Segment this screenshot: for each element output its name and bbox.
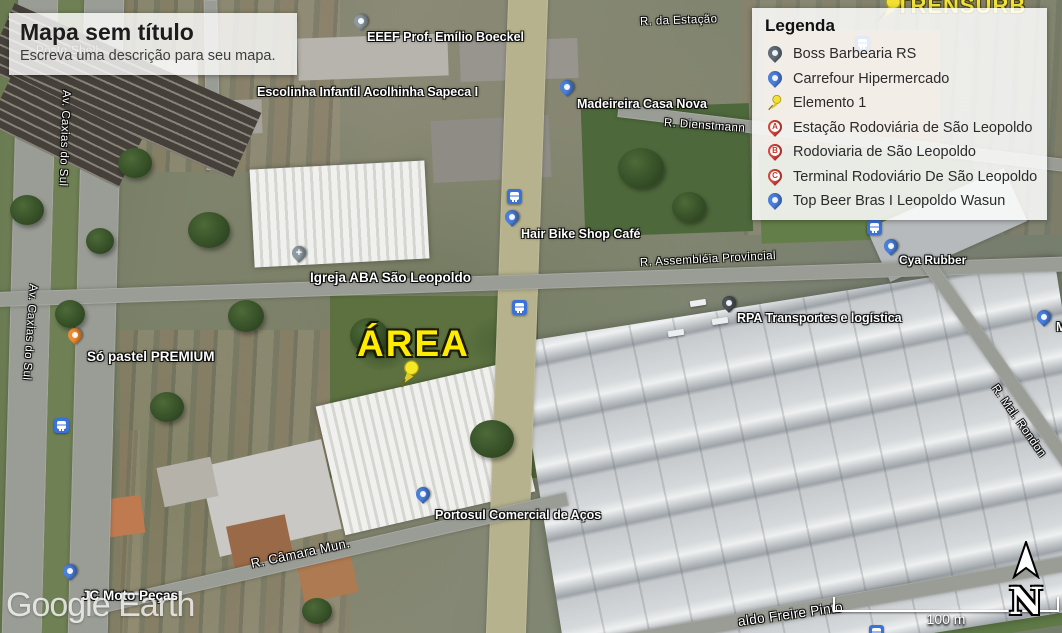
google-earth-watermark: Google Earth bbox=[6, 586, 194, 625]
red-pin-a-icon: A bbox=[765, 117, 785, 137]
legend-item[interactable]: Top Beer Bras I Leopoldo Wasun bbox=[752, 189, 1047, 214]
legend-item[interactable]: C Terminal Rodoviário De São Leopoldo bbox=[752, 165, 1047, 190]
tree bbox=[672, 192, 706, 222]
blue-pin-icon bbox=[765, 68, 785, 88]
legend-item-label: Rodoviaria de São Leopoldo bbox=[793, 144, 976, 160]
poi-label-eeef: EEEF Prof. Emílio Boeckel bbox=[367, 30, 524, 44]
tree bbox=[10, 195, 44, 225]
poi-label-so-pastel: Só pastel PREMIUM bbox=[87, 349, 215, 364]
area-label: ÁREA bbox=[357, 323, 470, 365]
legend-item-label: Estação Rodoviária de São Leopoldo bbox=[793, 120, 1032, 136]
tree bbox=[188, 212, 230, 248]
poi-label-escolinha: Escolinha Infantil Acolhinha Sapeca I bbox=[257, 85, 478, 99]
legend-panel: Legenda Boss Barbearia RS Carrefour Hipe… bbox=[752, 8, 1047, 220]
map-title-panel: Mapa sem título Escreva uma descrição pa… bbox=[9, 13, 297, 75]
legend-title: Legenda bbox=[765, 16, 1047, 36]
poi-label-madeireira: Madeireira Casa Nova bbox=[577, 97, 707, 111]
poi-label-igreja: Igreja ABA São Leopoldo bbox=[310, 270, 471, 285]
poi-label-cya-rubber: Cya Rubber bbox=[899, 253, 966, 267]
tree bbox=[150, 392, 184, 422]
gray-pin-icon bbox=[765, 43, 785, 63]
north-arrow-icon bbox=[1008, 541, 1044, 579]
tree bbox=[618, 148, 664, 188]
north-letter: N bbox=[1008, 584, 1044, 618]
yellow-pushpin-icon bbox=[766, 94, 784, 112]
legend-item[interactable]: A Estação Rodoviária de São Leopoldo bbox=[752, 116, 1047, 141]
bus-stop-icon[interactable] bbox=[507, 189, 522, 204]
north-compass[interactable]: N bbox=[1008, 541, 1044, 618]
tree bbox=[228, 300, 264, 332]
bus-stop-icon[interactable] bbox=[512, 300, 527, 315]
tree bbox=[55, 300, 85, 328]
poi-label-partial-m: M bbox=[1056, 320, 1062, 334]
legend-item-label: Top Beer Bras I Leopoldo Wasun bbox=[793, 193, 1005, 209]
bus-stop-icon[interactable] bbox=[54, 418, 69, 433]
blue-pin-icon bbox=[765, 190, 785, 210]
warehouse-roof bbox=[250, 160, 430, 267]
map-canvas[interactable]: Posto Shell TRENSURB EEEF Prof. Emílio B… bbox=[0, 0, 1062, 633]
poi-label-portosul: Portosul Comercial de Aços bbox=[435, 508, 601, 522]
legend-item[interactable]: Boss Barbearia RS bbox=[752, 42, 1047, 67]
tree bbox=[118, 148, 152, 178]
map-title: Mapa sem título bbox=[20, 19, 286, 45]
map-description: Escreva uma descrição para seu mapa. bbox=[20, 48, 286, 64]
poi-label-hair-bike: Hair Bike Shop Café bbox=[521, 227, 640, 241]
tree bbox=[470, 420, 514, 458]
red-pin-b-icon: B bbox=[765, 141, 785, 161]
legend-item[interactable]: Carrefour Hipermercado bbox=[752, 67, 1047, 92]
red-pin-c-icon: C bbox=[765, 166, 785, 186]
legend-item[interactable]: B Rodoviaria de São Leopoldo bbox=[752, 140, 1047, 165]
legend-item-label: Carrefour Hipermercado bbox=[793, 71, 949, 87]
legend-item-label: Elemento 1 bbox=[793, 95, 866, 111]
bus-stop-icon[interactable] bbox=[867, 220, 882, 235]
tree bbox=[302, 598, 332, 624]
legend-item-label: Boss Barbearia RS bbox=[793, 46, 916, 62]
poi-label-rpa: RPA Transportes e logística bbox=[737, 311, 902, 325]
legend-item-label: Terminal Rodoviário De São Leopoldo bbox=[793, 169, 1037, 185]
tree bbox=[86, 228, 114, 254]
legend-item[interactable]: Elemento 1 bbox=[752, 91, 1047, 116]
